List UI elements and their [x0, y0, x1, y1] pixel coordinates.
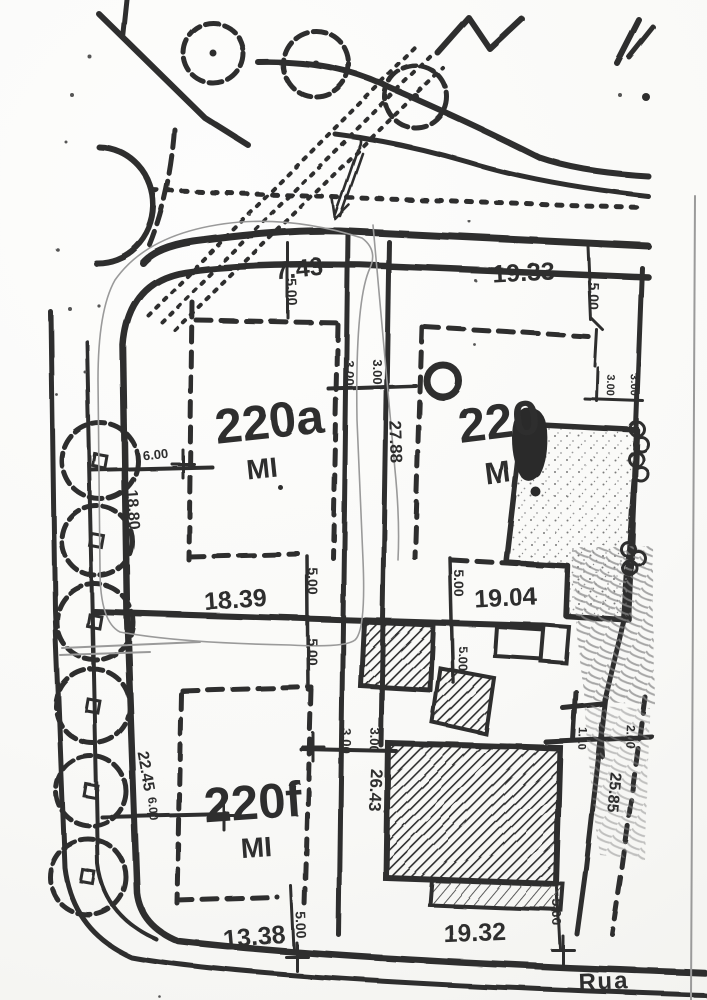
- small-white-annex-1: [495, 627, 544, 659]
- setback-3-00-low-b: 3.00: [367, 727, 383, 753]
- setback-3-00-right-b: 3.00: [628, 374, 641, 396]
- plot-id-220a: 220a: [212, 389, 327, 454]
- setback-3-00-low-a: 3.00: [339, 728, 355, 754]
- stray-dot: [278, 485, 283, 490]
- setback-5-00-bot-right: 5.00: [549, 898, 565, 925]
- scan-page-edge: [691, 196, 695, 1000]
- street-name: Rua: [578, 967, 630, 996]
- setback-3-00-top-a: 3.00: [342, 360, 357, 385]
- dim-6-00-upper: 6.00: [142, 446, 169, 464]
- setback-5-00-mid-a: 5.00: [305, 567, 321, 594]
- site-plan-map: 7.4319.335.005.003.003.003.003.0027.886.…: [0, 0, 707, 1000]
- setback-3-00-top-b: 3.00: [370, 359, 385, 384]
- vegetation-stipple-band-3: [175, 68, 443, 330]
- building-hatched-square: [361, 622, 433, 690]
- setback-5-00-top-right: 5.00: [586, 282, 603, 310]
- tree-icon: [50, 839, 126, 915]
- tree-icon: [385, 66, 447, 128]
- setback-5-00-bot-left: 5.00: [293, 911, 310, 939]
- setback-5-00-mid-c: 5.00: [451, 569, 467, 596]
- dim-2-00: 2.00: [624, 725, 639, 749]
- dim-19-04: 19.04: [474, 582, 538, 613]
- scanned-plan-page: 7.4319.335.005.003.003.003.003.0027.886.…: [0, 0, 707, 1000]
- utility-circle-symbol: [427, 365, 459, 397]
- building-large-hatched: [386, 743, 560, 884]
- dim-19-32: 19.32: [443, 918, 507, 948]
- tree-icon: [183, 23, 243, 83]
- setback-3-00-right-a: 3.00: [604, 374, 617, 396]
- pencil-shaded-area-1: [572, 545, 655, 705]
- plot-id-220: 220: [455, 390, 543, 454]
- setback-5-00-mid-d: 5.00: [456, 646, 471, 671]
- dim-25-85: 25.85: [603, 772, 623, 813]
- curved-road-edge-b: [335, 134, 648, 196]
- dim-18-39: 18.39: [203, 584, 267, 616]
- mid-division-line: [95, 612, 543, 626]
- top-decorative-roads: [96, 0, 653, 330]
- dim-18-80: 18.80: [123, 489, 143, 530]
- plot-zone-220: M: [483, 454, 513, 492]
- building-tilted-square: [432, 668, 494, 734]
- setback-5-00-mid-b: 5.00: [305, 638, 321, 665]
- dim-27-88: 27.88: [385, 420, 405, 463]
- plot-zone-220f: MI: [240, 831, 273, 864]
- dim-6-00-lower: 6.00: [145, 796, 161, 821]
- dim-1-10: 1.10: [575, 726, 590, 750]
- tree-icon: [62, 506, 132, 576]
- dotted-boundary-row: [152, 190, 645, 208]
- tree-icon: [56, 756, 126, 826]
- diagonal-road-stub: [123, 0, 127, 38]
- setback-5-00-top-left: 5.00: [284, 278, 301, 306]
- dim-13-38: 13.38: [222, 920, 287, 953]
- dim-26-43: 26.43: [365, 769, 386, 812]
- plot-zone-220a: MI: [245, 452, 279, 486]
- zigzag-mark-left: [437, 17, 521, 52]
- dim-22-45: 22.45: [134, 750, 158, 792]
- small-white-annex-2: [541, 625, 569, 663]
- culdesac-bulb-curve: [96, 147, 154, 263]
- plot-id-220f: 220f: [202, 773, 304, 834]
- middle-road-left-edge: [339, 234, 348, 935]
- line-top-3-00: [329, 386, 416, 389]
- ink-blotch-drip: [531, 487, 541, 497]
- dim-19-33: 19.33: [492, 257, 556, 288]
- line-6-00-upper: [90, 467, 212, 470]
- ink-blot: [642, 93, 650, 101]
- building-large-hatched-step: [430, 880, 563, 910]
